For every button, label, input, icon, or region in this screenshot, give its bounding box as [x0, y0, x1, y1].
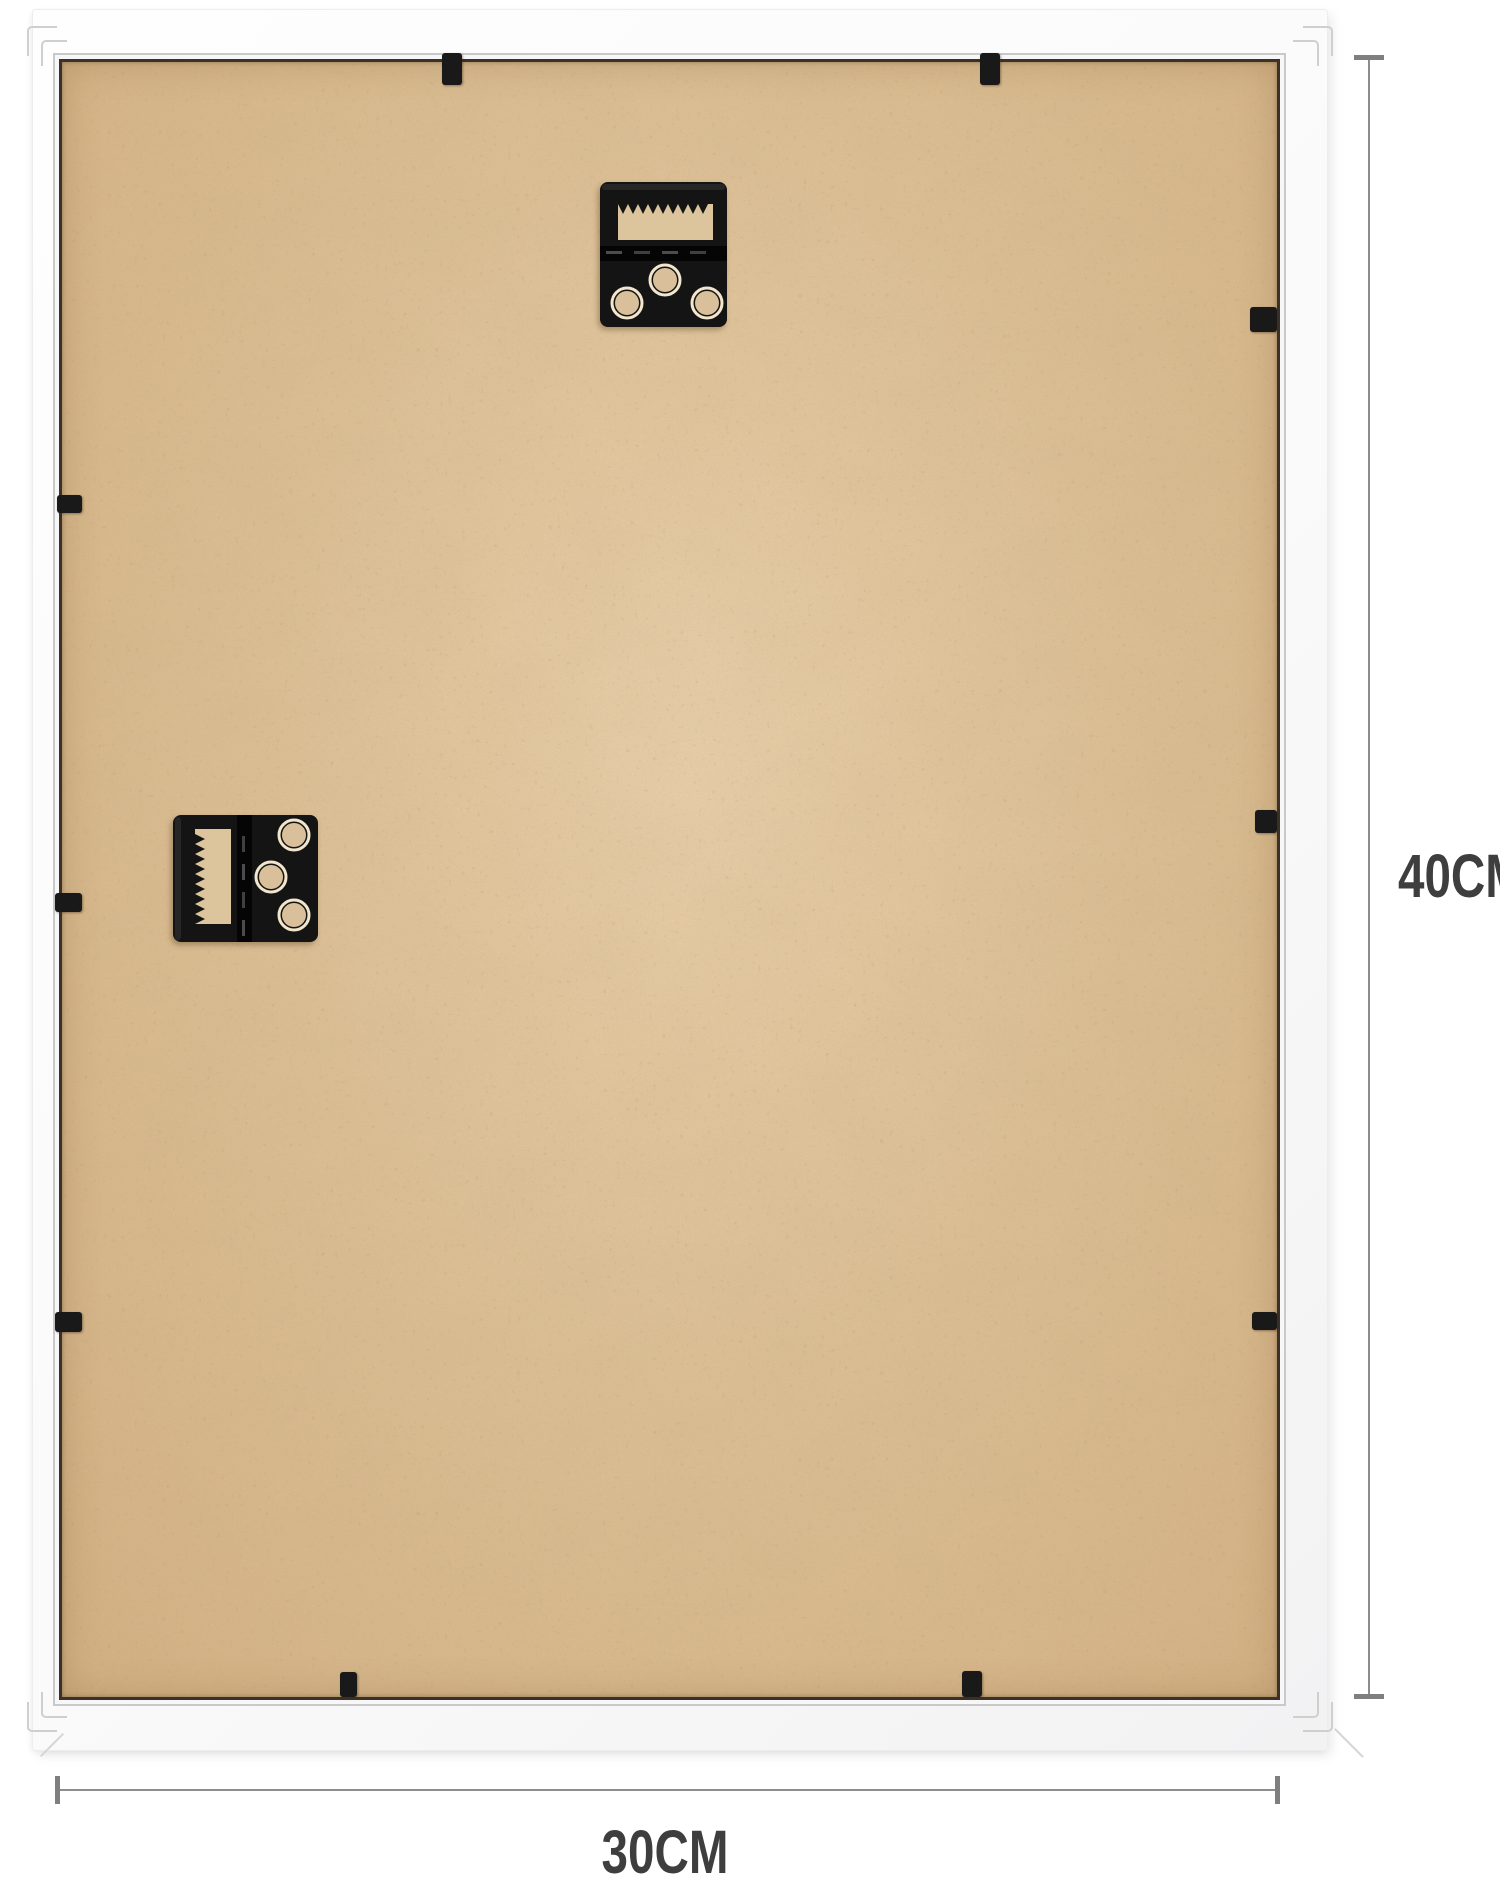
corner-shadow-line-bottom-right — [1334, 1728, 1364, 1758]
width-dimension-cap-left — [55, 1776, 60, 1804]
backboard-retainer-clip-left — [55, 893, 82, 912]
backboard-retainer-clip-right — [1250, 307, 1277, 332]
sawtooth-hanger-side — [173, 815, 318, 942]
corner-mark-bottom-right — [1281, 1680, 1333, 1732]
backboard-retainer-clip-right — [1255, 810, 1277, 833]
width-dimension-line — [57, 1789, 1277, 1791]
backboard-retainer-clip-bottom — [962, 1671, 982, 1697]
corner-shadow-line-bottom-left — [40, 1733, 64, 1757]
height-dimension-cap-bottom — [1354, 1694, 1384, 1699]
height-dimension-cap-top — [1354, 55, 1384, 60]
backboard-retainer-clip-top — [980, 53, 1000, 85]
mdf-backboard — [59, 59, 1280, 1700]
width-dimension-label: 30CM — [587, 1822, 743, 1883]
corner-mark-top-right — [1281, 26, 1333, 78]
sawtooth-hanger-top — [600, 182, 727, 327]
backboard-retainer-clip-left — [57, 495, 82, 513]
height-dimension-line — [1368, 57, 1370, 1697]
width-dimension-cap-right — [1275, 1776, 1280, 1804]
backboard-retainer-clip-bottom — [340, 1672, 357, 1697]
backboard-retainer-clip-top — [442, 53, 462, 85]
backboard-retainer-clip-right — [1252, 1312, 1277, 1330]
height-dimension-label: 40CM — [1398, 846, 1500, 907]
backboard-retainer-clip-left — [55, 1312, 82, 1332]
product-photo-frame-back: 40CM 30CM — [0, 0, 1500, 1871]
picture-frame-back — [33, 10, 1327, 1750]
